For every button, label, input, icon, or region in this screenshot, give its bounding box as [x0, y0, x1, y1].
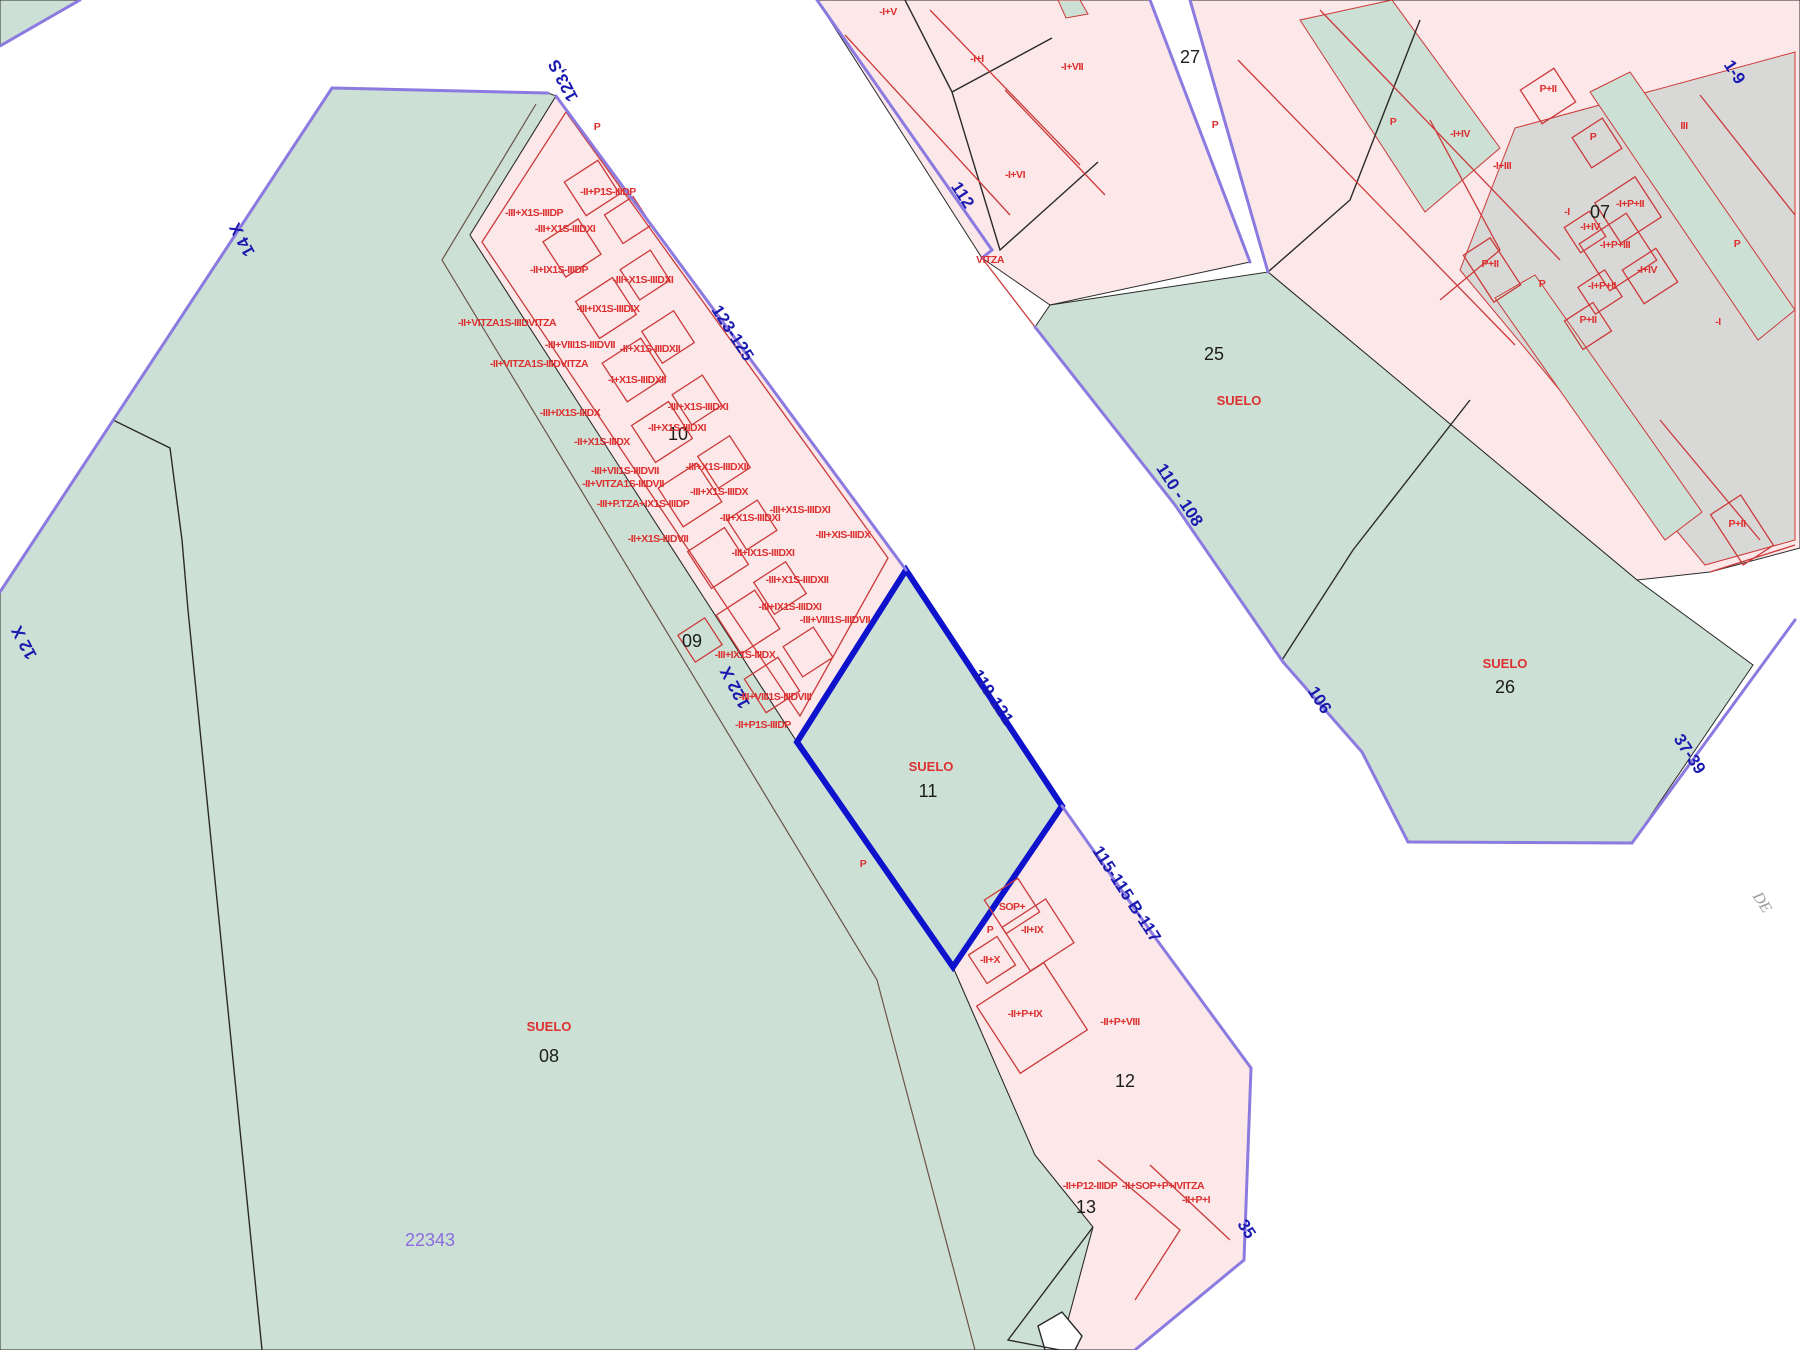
building-height-label: VITZA	[976, 254, 1005, 266]
building-height-label: -I+IV	[1580, 221, 1600, 233]
misc-label: DE	[1748, 888, 1775, 916]
building-height-label: P	[1539, 278, 1546, 290]
building-height-label: III	[1680, 120, 1688, 132]
building-height-label: -I+P+III	[1600, 239, 1631, 251]
building-height-label: -II+P1S-IIIDP	[735, 719, 791, 731]
building-height-label: -III+X1S-IIIDXI	[668, 401, 729, 413]
building-height-label: -III+X1S-IIIDXI	[613, 274, 674, 286]
building-height-label: -II+IX1S-IIIDP	[530, 264, 589, 276]
building-height-label: -I+V	[879, 6, 897, 18]
parcel-number: 08	[539, 1046, 559, 1066]
building-height-label: -II+SOP+P+IVITZA	[1122, 1180, 1205, 1192]
building-height-label: -III+VIII1S-IIIDVII	[800, 614, 871, 626]
building-height-label: -I+P+II	[1616, 198, 1645, 210]
building-height-label: -II+X	[980, 954, 1000, 966]
misc-label: 22343	[405, 1230, 455, 1250]
building-height-label: P+II	[1540, 83, 1558, 95]
building-height-label: -II+X1S-IIIDXII	[620, 343, 681, 355]
building-height-label: P	[1390, 116, 1397, 128]
building-height-label: -III+VIII1S-IIIDVII	[545, 339, 616, 351]
suelo-label: SUELO	[527, 1019, 572, 1034]
building-height-label: -III+X1S-IIIDXI	[535, 223, 596, 235]
building-height-label: -III+IX1S-IIIDX	[715, 649, 776, 661]
building-height-label: -II+P+VIII	[1100, 1016, 1140, 1028]
parcel-number: 12	[1115, 1071, 1135, 1091]
building-height-label: -III+IX1S-IIIDXI	[759, 601, 822, 613]
parcel-number: 13	[1076, 1197, 1096, 1217]
building-height-label: -II+P12-IIIDP	[1063, 1180, 1118, 1192]
building-height-label: -I	[1715, 316, 1721, 328]
building-height-label: -II+P+I	[1182, 1194, 1211, 1206]
building-height-label: -I+VII	[1061, 61, 1084, 73]
building-height-label: -II+X1S-IIIDVII	[628, 533, 689, 545]
building-height-label: -II+IX	[1021, 924, 1044, 936]
building-height-label: -I+VI	[1005, 169, 1026, 181]
building-height-label: -III+X1S-IIIDXII	[686, 461, 749, 473]
parcel-number: 07	[1590, 202, 1610, 222]
building-height-label: P+II	[1482, 258, 1500, 270]
building-height-label: P	[1590, 131, 1597, 143]
building-height-label: -I+IV	[1637, 264, 1657, 276]
parcel-number: 11	[919, 781, 938, 801]
suelo-label: SUELO	[1483, 656, 1528, 671]
building-height-label: P	[1734, 238, 1741, 250]
suelo-label: SUELO	[909, 759, 954, 774]
building-height-label: -I+X1S-IIIDXII	[608, 374, 667, 386]
street-edge-green26-s	[1408, 842, 1632, 843]
building-height-label: -III+IX1S-IIIDIX	[577, 303, 640, 315]
building-height-label: -III+X1S-IIIDP	[505, 207, 564, 219]
parcel-polygons	[0, 0, 1800, 1350]
building-height-label: -III+VIII1S-IIIDVIII	[739, 691, 812, 703]
building-height-label: SOP+	[999, 901, 1026, 913]
building-height-label: -II+P1S-IIIDP	[580, 186, 636, 198]
building-height-label: -III+X1S-IIIDXII	[766, 574, 829, 586]
building-height-label: -I+I	[970, 53, 984, 65]
cadastral-map-viewport[interactable]: 123,S14 X12 X123-125122 X119-121115-115 …	[0, 0, 1800, 1350]
building-height-label: -III+IX1S-IIIDX	[540, 407, 601, 419]
building-height-label: -I	[1564, 206, 1570, 218]
building-height-label: -I+III	[1493, 160, 1512, 172]
building-height-label: -II+X1S-IIIDX	[574, 436, 630, 448]
building-height-label: -III+P.TZA+IX1S-IIIDP	[597, 498, 690, 510]
building-height-label: -I+P+II	[1588, 280, 1617, 292]
building-height-label: P	[1212, 119, 1219, 131]
building-height-label: P	[987, 924, 994, 936]
building-height-label: -II+X1S-IIIDXI	[648, 422, 707, 434]
parcel-number: 25	[1204, 344, 1224, 364]
parcel-27-block[interactable]	[817, 0, 1250, 305]
building-height-label: -III+IX1S-IIIDXI	[732, 547, 795, 559]
parcel-number: 09	[682, 631, 702, 651]
building-height-label: P+II	[1580, 314, 1598, 326]
building-height-label: -III+X1S-IIIDX	[690, 486, 749, 498]
building-height-label: -III+X1S-IIIDXI	[770, 504, 831, 516]
cadastral-map-canvas[interactable]: 123,S14 X12 X123-125122 X119-121115-115 …	[0, 0, 1800, 1350]
building-height-label: -II+VITZA1S-IIIDVITZA	[490, 358, 589, 370]
building-height-label: -II+P+IX	[1008, 1008, 1043, 1020]
parcel-number: 27	[1180, 47, 1200, 67]
suelo-label: SUELO	[1217, 393, 1262, 408]
building-height-label: -II+VITZA1S-IIIDVII	[582, 478, 664, 490]
parcel-number: 26	[1495, 677, 1515, 697]
building-height-label: -II+VITZA1S-IIIDVITZA	[458, 317, 557, 329]
building-height-label: -I+IV	[1450, 128, 1470, 140]
building-height-label: -III+XIS-IIIDX	[815, 529, 871, 541]
building-height-label: P+II	[1729, 518, 1747, 530]
building-height-label: P	[860, 858, 867, 870]
building-height-label: -III+VII1S-IIIDVII	[591, 465, 659, 477]
building-height-label: P	[594, 121, 601, 133]
